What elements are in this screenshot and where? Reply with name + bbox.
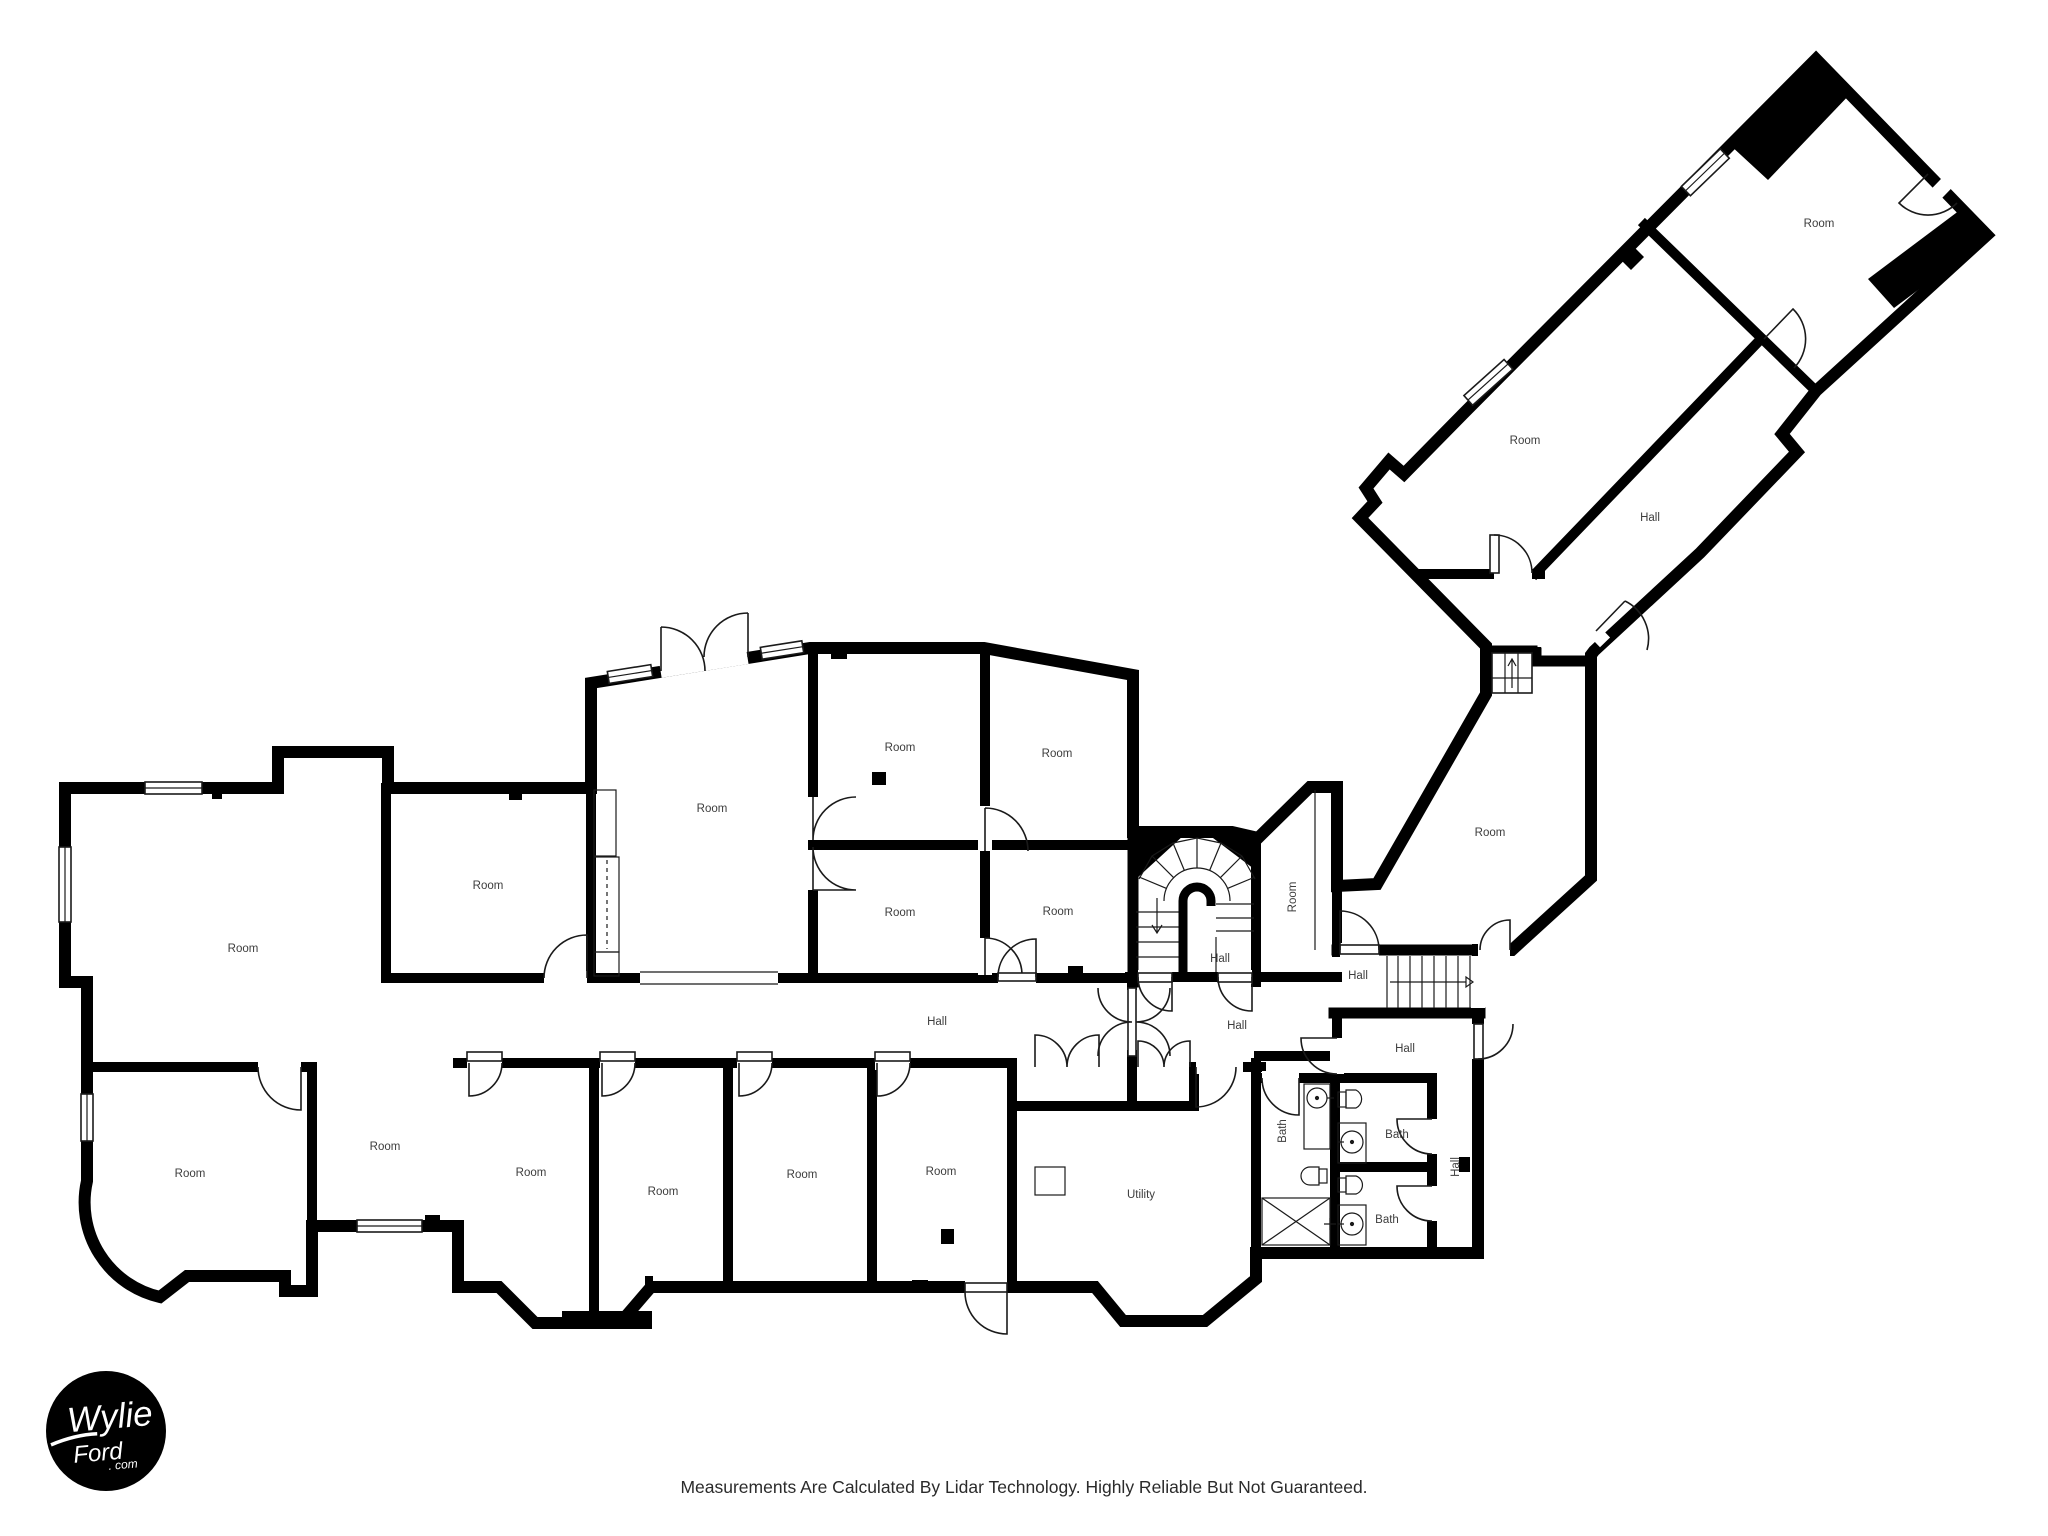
svg-text:Measurements Are Calculated By: Measurements Are Calculated By Lidar Tec… (680, 1477, 1367, 1497)
svg-text:Room: Room (926, 1166, 957, 1178)
svg-text:Hall: Hall (1348, 970, 1368, 982)
svg-text:Hall: Hall (927, 1016, 947, 1028)
svg-text:Room: Room (473, 880, 504, 892)
svg-text:Wylie: Wylie (65, 1394, 154, 1440)
svg-text:Hall: Hall (1395, 1043, 1415, 1055)
svg-text:Bath: Bath (1385, 1129, 1409, 1141)
svg-text:Room: Room (648, 1186, 679, 1198)
svg-text:Room: Room (1475, 827, 1506, 839)
svg-text:Room: Room (175, 1168, 206, 1180)
svg-text:Room: Room (228, 943, 259, 955)
svg-text:Room: Room (1510, 435, 1541, 447)
svg-text:Room: Room (516, 1167, 547, 1179)
svg-text:Room: Room (1804, 218, 1835, 230)
svg-text:Room: Room (1042, 748, 1073, 760)
svg-text:Hall: Hall (1227, 1020, 1247, 1032)
svg-text:Room: Room (1287, 882, 1299, 913)
svg-text:Utility: Utility (1127, 1189, 1155, 1201)
svg-text:Room: Room (885, 742, 916, 754)
svg-text:Room: Room (885, 907, 916, 919)
svg-text:Bath: Bath (1277, 1119, 1289, 1143)
svg-text:Hall: Hall (1210, 953, 1230, 965)
svg-text:Hall: Hall (1640, 512, 1660, 524)
svg-text:Room: Room (1043, 906, 1074, 918)
svg-text:Room: Room (787, 1169, 818, 1181)
svg-text:Room: Room (370, 1141, 401, 1153)
svg-text:Hall: Hall (1450, 1157, 1462, 1177)
svg-text:Bath: Bath (1375, 1214, 1399, 1226)
svg-text:Room: Room (697, 803, 728, 815)
svg-text:. com: . com (108, 1456, 138, 1473)
